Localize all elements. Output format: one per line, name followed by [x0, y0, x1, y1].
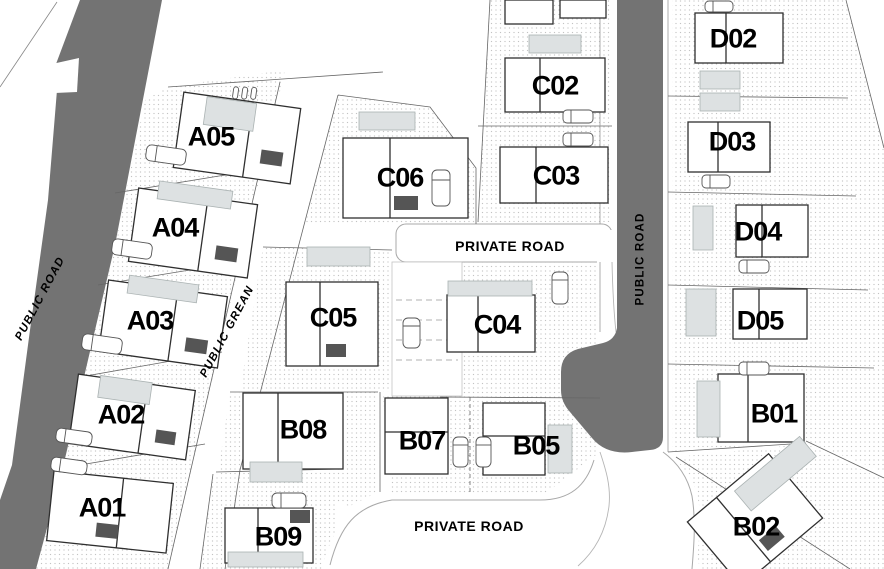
plot-label-a04: A04 — [152, 215, 199, 242]
private-road-top-label: PRIVATE ROAD — [455, 239, 565, 253]
plot-label-a05: A05 — [188, 124, 235, 151]
plot-label-c05: C05 — [310, 305, 357, 332]
plot-label-c04: C04 — [474, 312, 521, 339]
plot-label-b01: B01 — [751, 401, 798, 428]
plot-label-a01: A01 — [79, 495, 126, 522]
site-plan-image: A01 A02 A03 A04 A05 B01 B02 B05 B07 B08 … — [0, 0, 884, 569]
plot-label-d04: D04 — [735, 219, 782, 246]
plot-label-d05: D05 — [737, 308, 784, 335]
plot-label-b02: B02 — [733, 514, 780, 541]
plot-label-c02: C02 — [532, 73, 579, 100]
private-road-bottom-label: PRIVATE ROAD — [414, 519, 524, 533]
site-plan-drawing — [0, 0, 884, 569]
plot-label-d03: D03 — [709, 129, 756, 156]
plot-label-b09: B09 — [255, 524, 302, 551]
plot-label-a02: A02 — [98, 402, 145, 429]
plot-label-b05: B05 — [513, 433, 560, 460]
plot-label-b07: B07 — [399, 428, 446, 455]
plot-label-d02: D02 — [710, 26, 757, 53]
public-road-right-label: PUBLIC ROAD — [635, 212, 647, 305]
plot-label-a03: A03 — [127, 308, 174, 335]
plot-label-c03: C03 — [533, 163, 580, 190]
plot-label-c06: C06 — [377, 165, 424, 192]
plot-label-b08: B08 — [280, 417, 327, 444]
